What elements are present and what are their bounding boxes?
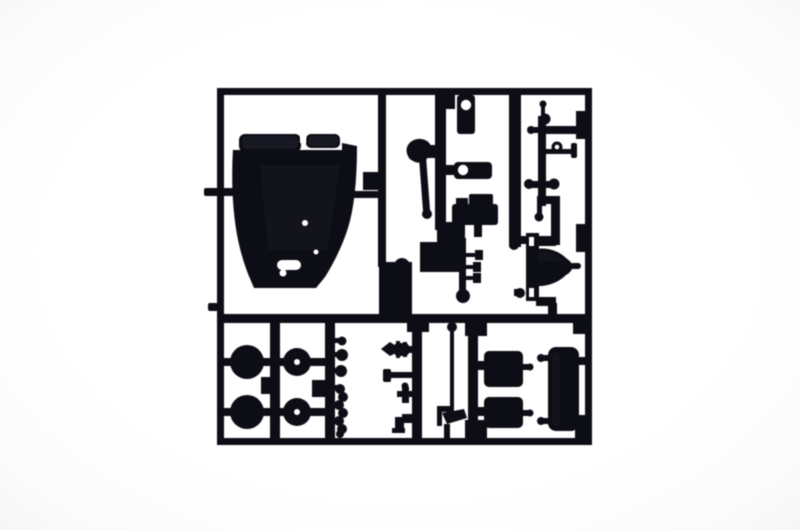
bracket-hole (461, 100, 471, 110)
body-hole-3 (280, 270, 287, 277)
runner-a2-tab (261, 377, 272, 394)
runner-c-junction (407, 314, 429, 332)
antenna-rod-part (437, 322, 467, 438)
runner-b2 (325, 318, 335, 440)
frame-tab-right-2 (576, 224, 592, 252)
body-roof-notch (300, 132, 306, 143)
bell-housing-part (514, 233, 581, 318)
frame-nub-left-2 (208, 303, 218, 311)
body-slot (277, 260, 301, 270)
body-right-stub (352, 191, 380, 198)
frame-nub-left-1 (204, 188, 218, 196)
hub-hole-2 (294, 409, 300, 415)
runner-v1 (378, 95, 386, 267)
runner-v1-tab (363, 172, 379, 190)
ring-hole (555, 145, 560, 150)
wheel-disc-part-2 (223, 395, 272, 429)
sleeve-slot-top (529, 237, 534, 246)
ring-eyelet-part (546, 142, 577, 159)
spear-valve-part (381, 341, 414, 358)
pin-fittings-part (524, 101, 578, 246)
tall-panel-part (537, 347, 586, 431)
runner-v1b-tab (445, 93, 455, 109)
eye-bracket-part (446, 162, 492, 179)
runner-b2-tab (312, 380, 326, 397)
push-rod-part (383, 369, 414, 382)
hole-bracket-part (457, 93, 475, 134)
frame-tab-right-1 (576, 111, 592, 139)
body-hole-1 (302, 220, 308, 226)
seat-panel-part-2 (478, 397, 534, 428)
manifold-ladder-part (456, 238, 483, 303)
body-hole-2 (314, 250, 319, 255)
runner-v2 (509, 95, 521, 247)
runner-block-b (420, 242, 459, 272)
gear-lever-part (407, 139, 439, 219)
runner-c2-junction-top (465, 314, 487, 336)
body-left-stub (223, 188, 234, 196)
corner-block-tr (573, 314, 592, 334)
hub-hole-1 (294, 359, 300, 365)
sleeve-slot-bottom (529, 288, 534, 297)
seat-panel-part-1 (478, 351, 534, 387)
runner-ball (394, 258, 410, 274)
runner-v1b (435, 95, 446, 230)
carburetor-block-part (452, 194, 498, 240)
eye-bracket-hole (458, 165, 468, 175)
cross-pin-part (397, 383, 414, 404)
sprue-photo-canvas (0, 0, 800, 530)
hub-washer-part-2 (277, 398, 327, 426)
runner-c2-junction-bottom (465, 420, 487, 440)
hub-washer-part-1 (277, 348, 327, 376)
sprue-product-photo (0, 0, 800, 530)
wheel-disc-part-1 (223, 345, 272, 379)
bead-strip-part (333, 337, 348, 439)
